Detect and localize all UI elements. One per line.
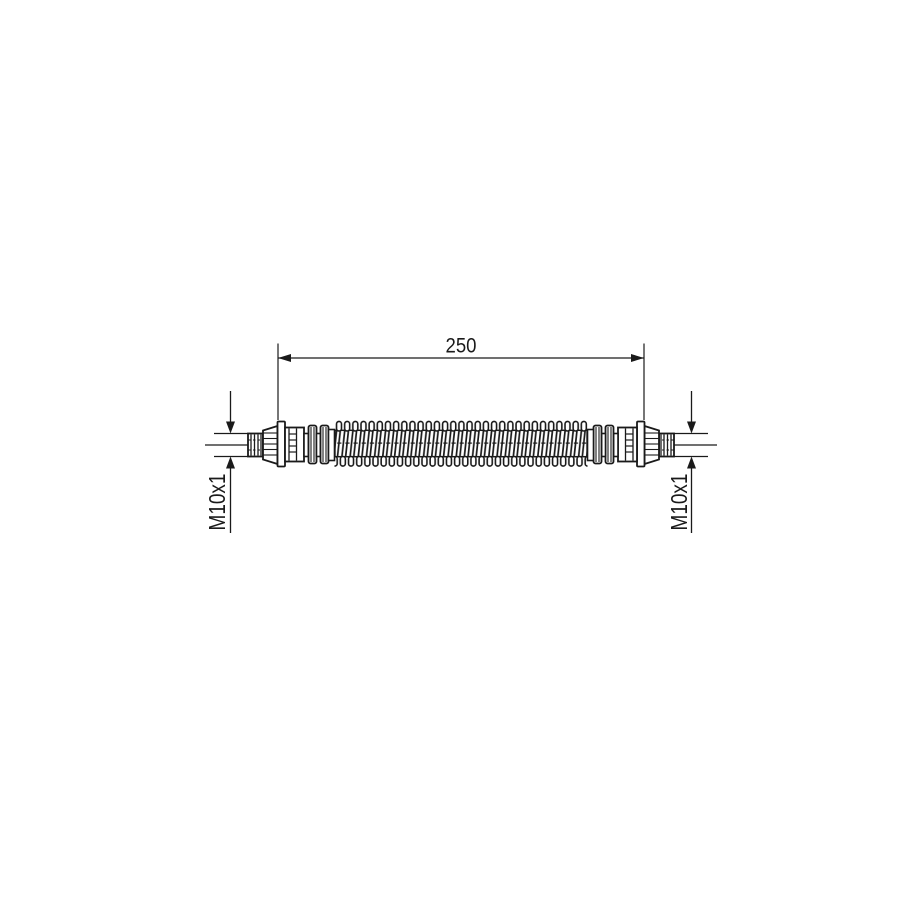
length-dimension-label: 250 bbox=[446, 334, 477, 358]
left-thread-size-label: M10x1 bbox=[204, 474, 230, 531]
drawing-canvas: 250 M10x1 M10x1 bbox=[0, 0, 900, 900]
dimension-arrow-left-icon bbox=[278, 354, 291, 362]
right-fitting bbox=[587, 391, 717, 533]
dimension-arrow-right-icon bbox=[631, 354, 644, 362]
right-thread-size-label: M10x1 bbox=[666, 474, 692, 531]
brake-hose-technical-drawing: 250 M10x1 M10x1 bbox=[0, 0, 900, 900]
corrugated-hose bbox=[335, 421, 588, 468]
